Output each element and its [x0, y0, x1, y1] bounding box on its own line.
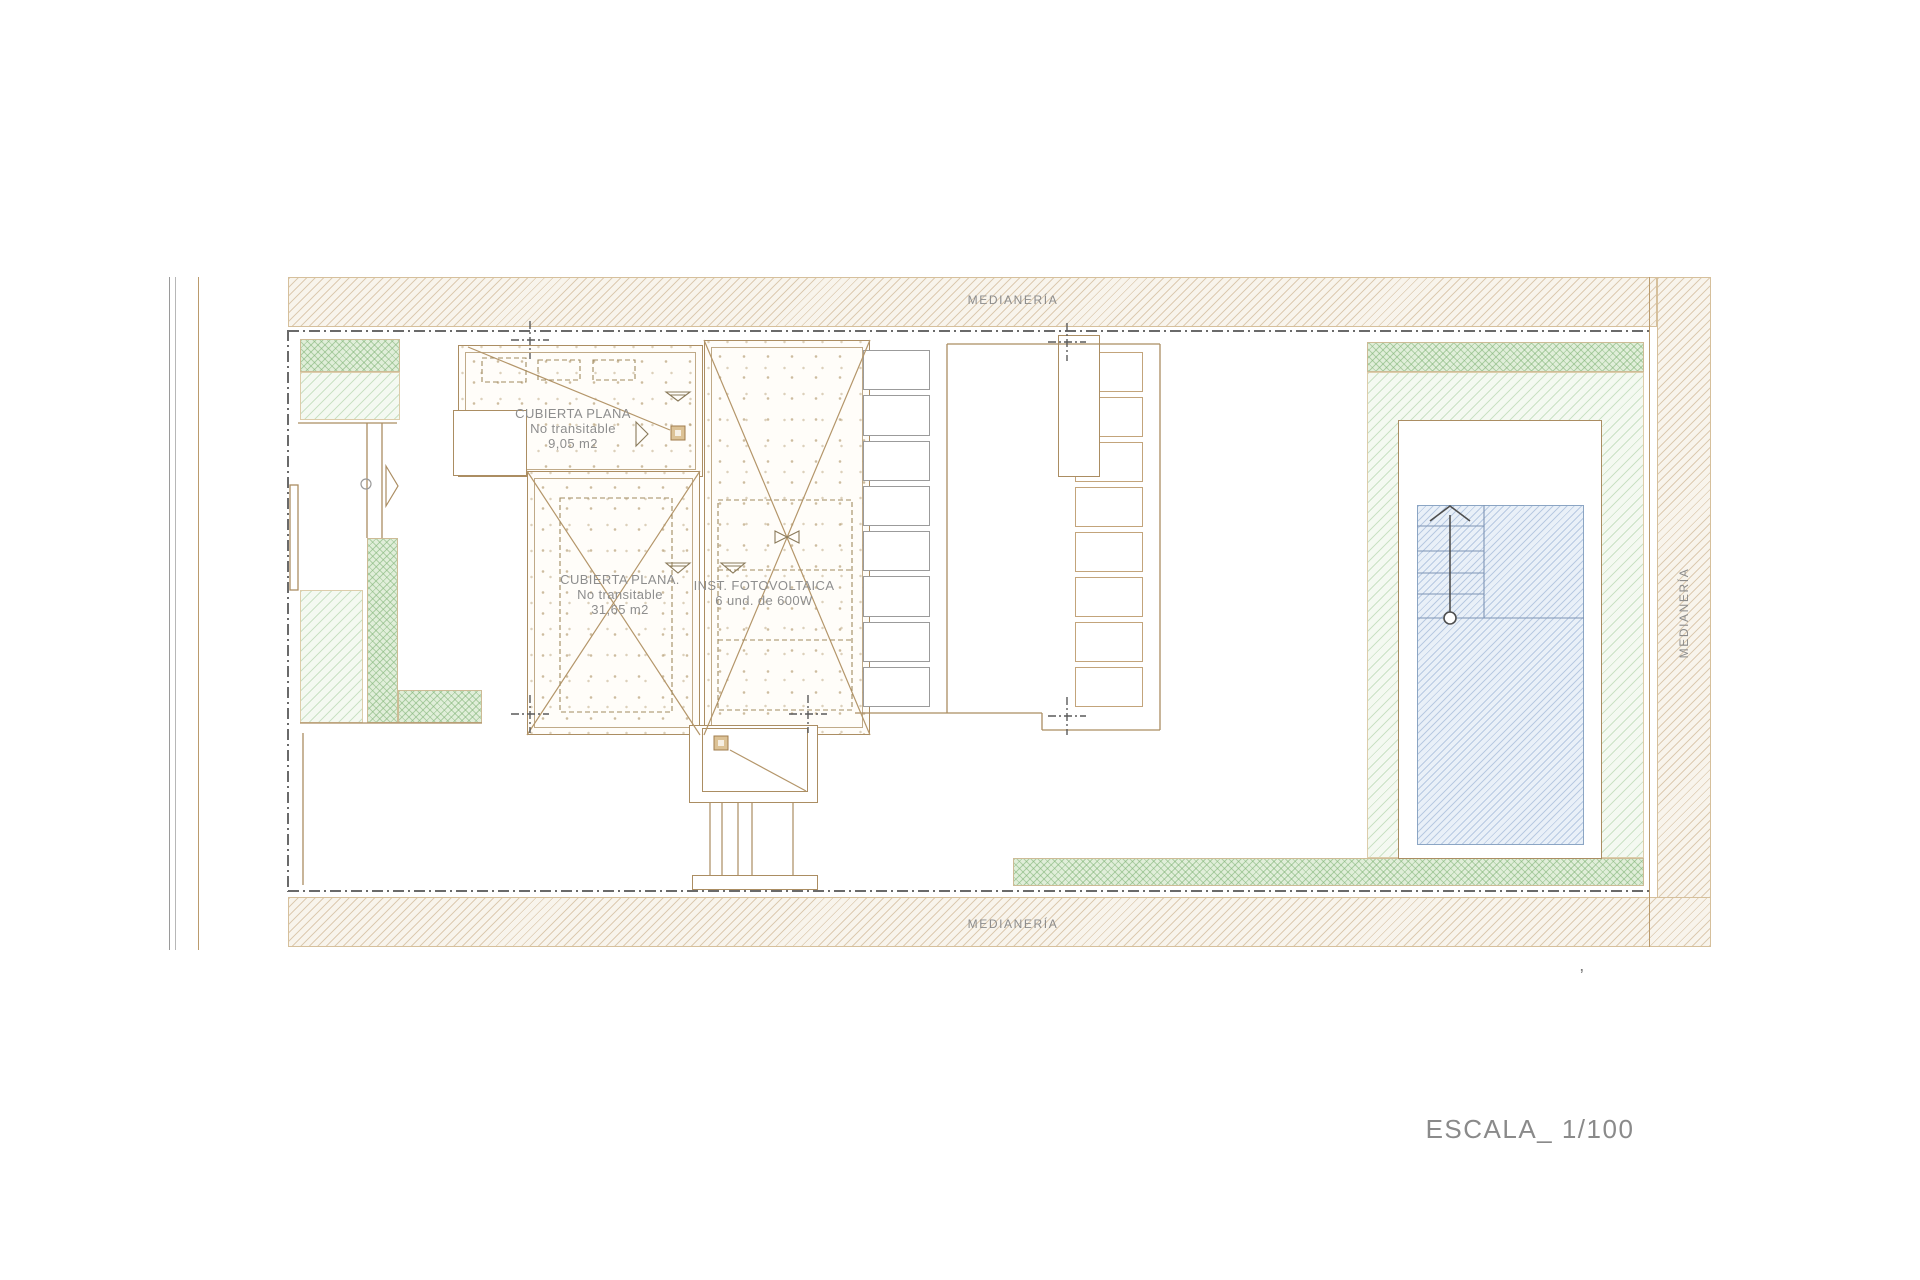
photovoltaic-title: INST. FOTOVOLTAICA [674, 578, 854, 593]
scale-label: ESCALA_ 1/100 [1410, 1114, 1650, 1145]
roof-small-area: 9,05 m2 [483, 436, 663, 451]
photovoltaic-detail: 6 und. de 600W [674, 593, 854, 608]
party-wall-label-bottom: MEDIANERÍA [933, 917, 1093, 931]
pool-steps [1417, 505, 1584, 618]
roof-small-subtitle: No transitable [483, 421, 663, 436]
roof-small-label: CUBIERTA PLANA No transitable 9,05 m2 [483, 406, 663, 451]
photovoltaic-label: INST. FOTOVOLTAICA 6 und. de 600W [674, 578, 854, 608]
vent-icon [775, 531, 799, 543]
roof-plan-page: MEDIANERÍA MEDIANERÍA MEDIANERÍA CUBIERT… [0, 0, 1920, 1280]
building-outline [290, 344, 1160, 885]
stray-mark: ’ [1572, 966, 1592, 987]
exterior-stair [710, 803, 793, 875]
linework-overlay [0, 0, 1920, 1280]
stairs-arrow-icon [1430, 506, 1470, 624]
roof-small-title: CUBIERTA PLANA [483, 406, 663, 421]
party-wall-label-right: MEDIANERÍA [1677, 543, 1691, 683]
centerline-cross [511, 321, 1086, 735]
party-wall-label-top: MEDIANERÍA [933, 293, 1093, 307]
